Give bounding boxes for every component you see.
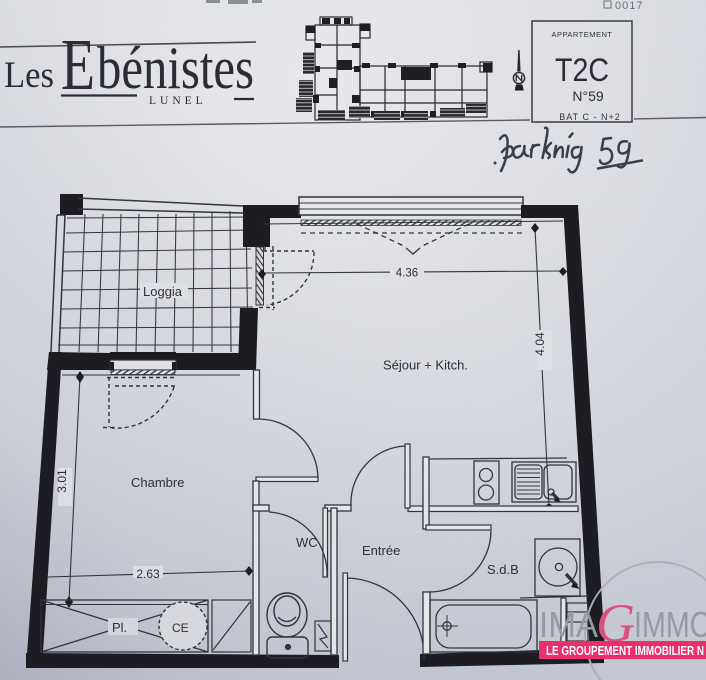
svg-text:LUNEL: LUNEL [149, 95, 207, 107]
svg-text:2.63: 2.63 [136, 567, 160, 581]
svg-text:N°59: N°59 [572, 88, 603, 104]
svg-text:Séjour + Kitch.: Séjour + Kitch. [383, 358, 468, 373]
svg-text:bénistes: bénistes [97, 35, 254, 101]
svg-text:APPARTEMENT: APPARTEMENT [551, 30, 612, 39]
svg-text:S.d.B: S.d.B [487, 562, 519, 577]
svg-text:T2C: T2C [555, 52, 609, 88]
svg-text:E: E [61, 24, 95, 105]
svg-text:BAT C - N+2: BAT C - N+2 [559, 112, 620, 122]
svg-text:Chambre: Chambre [131, 475, 184, 490]
svg-text:0017: 0017 [615, 0, 643, 12]
svg-text:Les: Les [4, 55, 54, 96]
svg-text:Loggia: Loggia [143, 284, 183, 299]
svg-text:IMA: IMA [539, 604, 598, 645]
svg-text:3.01: 3.01 [55, 469, 69, 493]
svg-text:IMMO: IMMO [634, 604, 706, 645]
svg-text:4.04: 4.04 [533, 332, 547, 356]
svg-text:WC: WC [296, 535, 318, 550]
svg-text:Pl.: Pl. [112, 620, 127, 635]
svg-text:Entrée: Entrée [362, 543, 400, 558]
svg-text:CE: CE [172, 621, 189, 635]
svg-text:LE GROUPEMENT IMMOBILIER N: LE GROUPEMENT IMMOBILIER N [546, 644, 704, 658]
svg-text:4.36: 4.36 [396, 268, 418, 280]
